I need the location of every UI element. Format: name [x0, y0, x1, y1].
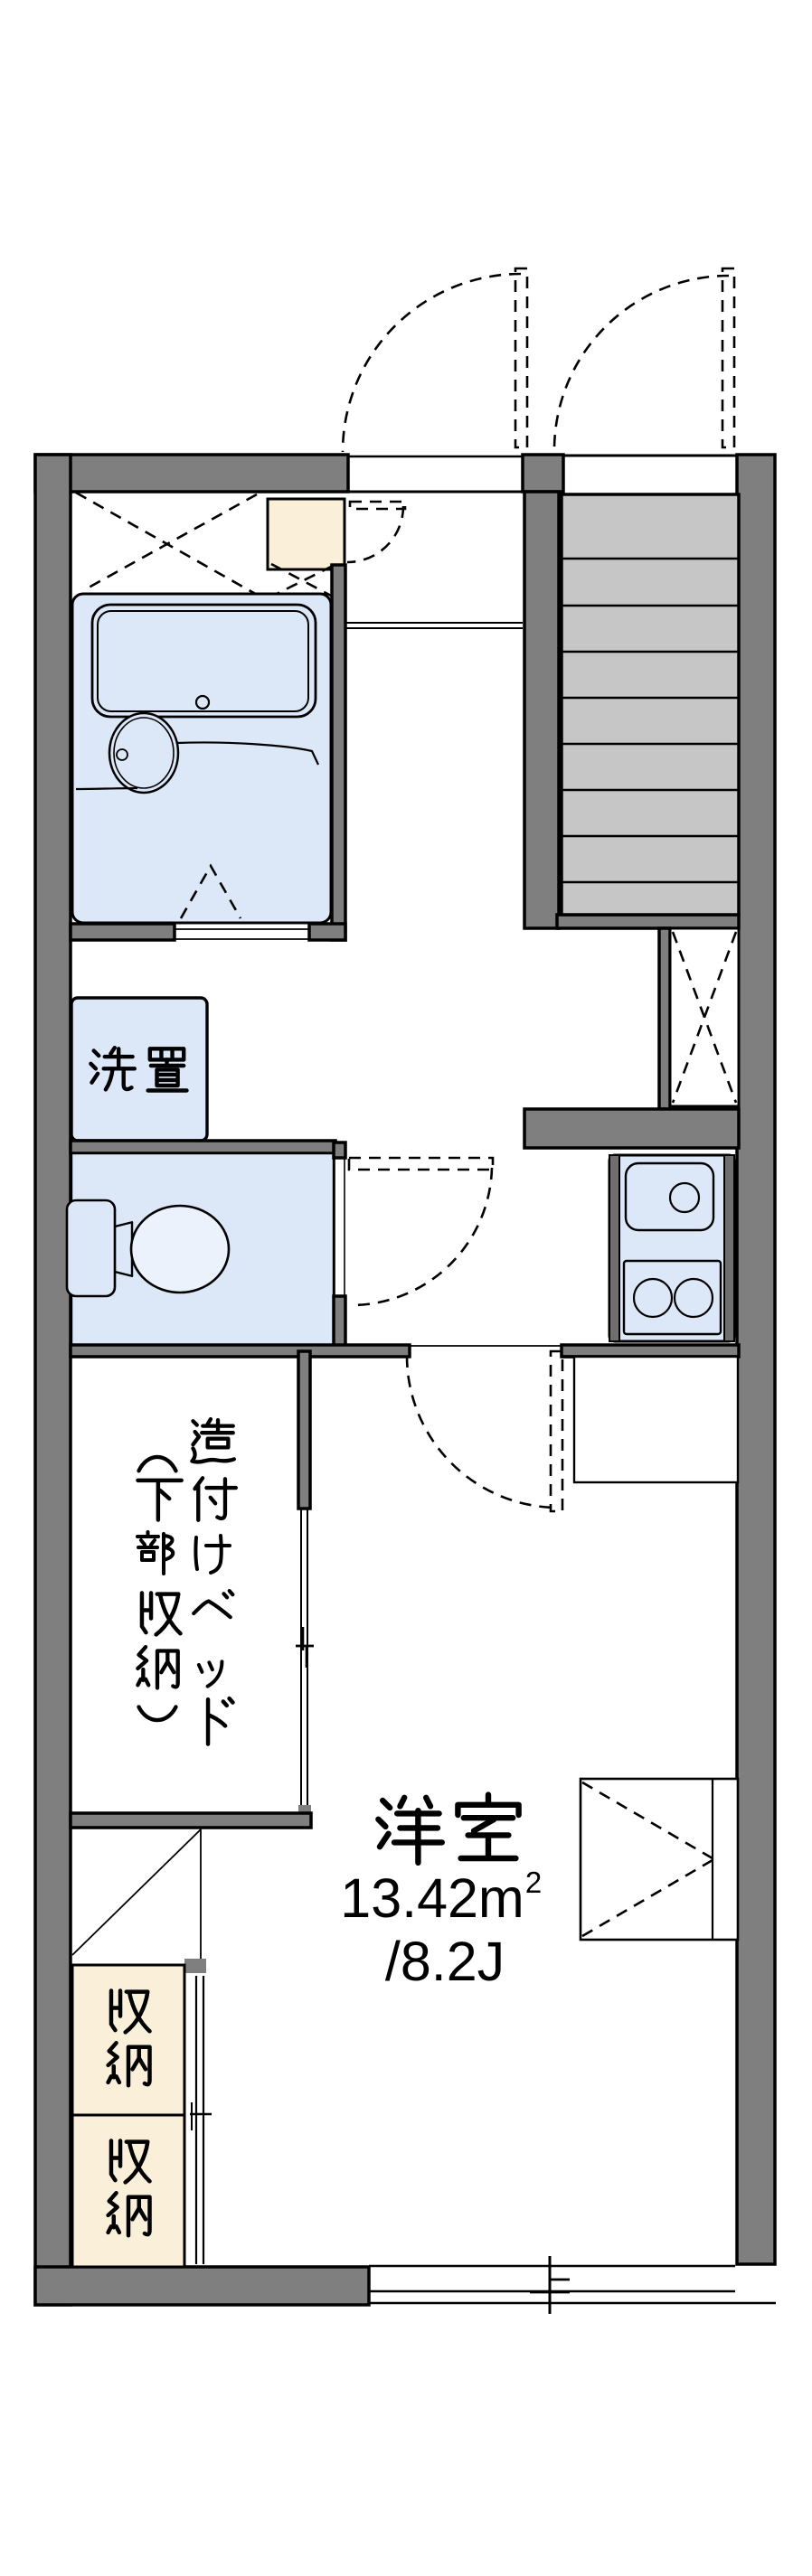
svg-text:13.42m: 13.42m	[340, 1867, 524, 1929]
svg-text:2: 2	[525, 1866, 542, 1899]
svg-text:/8.2J: /8.2J	[385, 1931, 505, 1992]
